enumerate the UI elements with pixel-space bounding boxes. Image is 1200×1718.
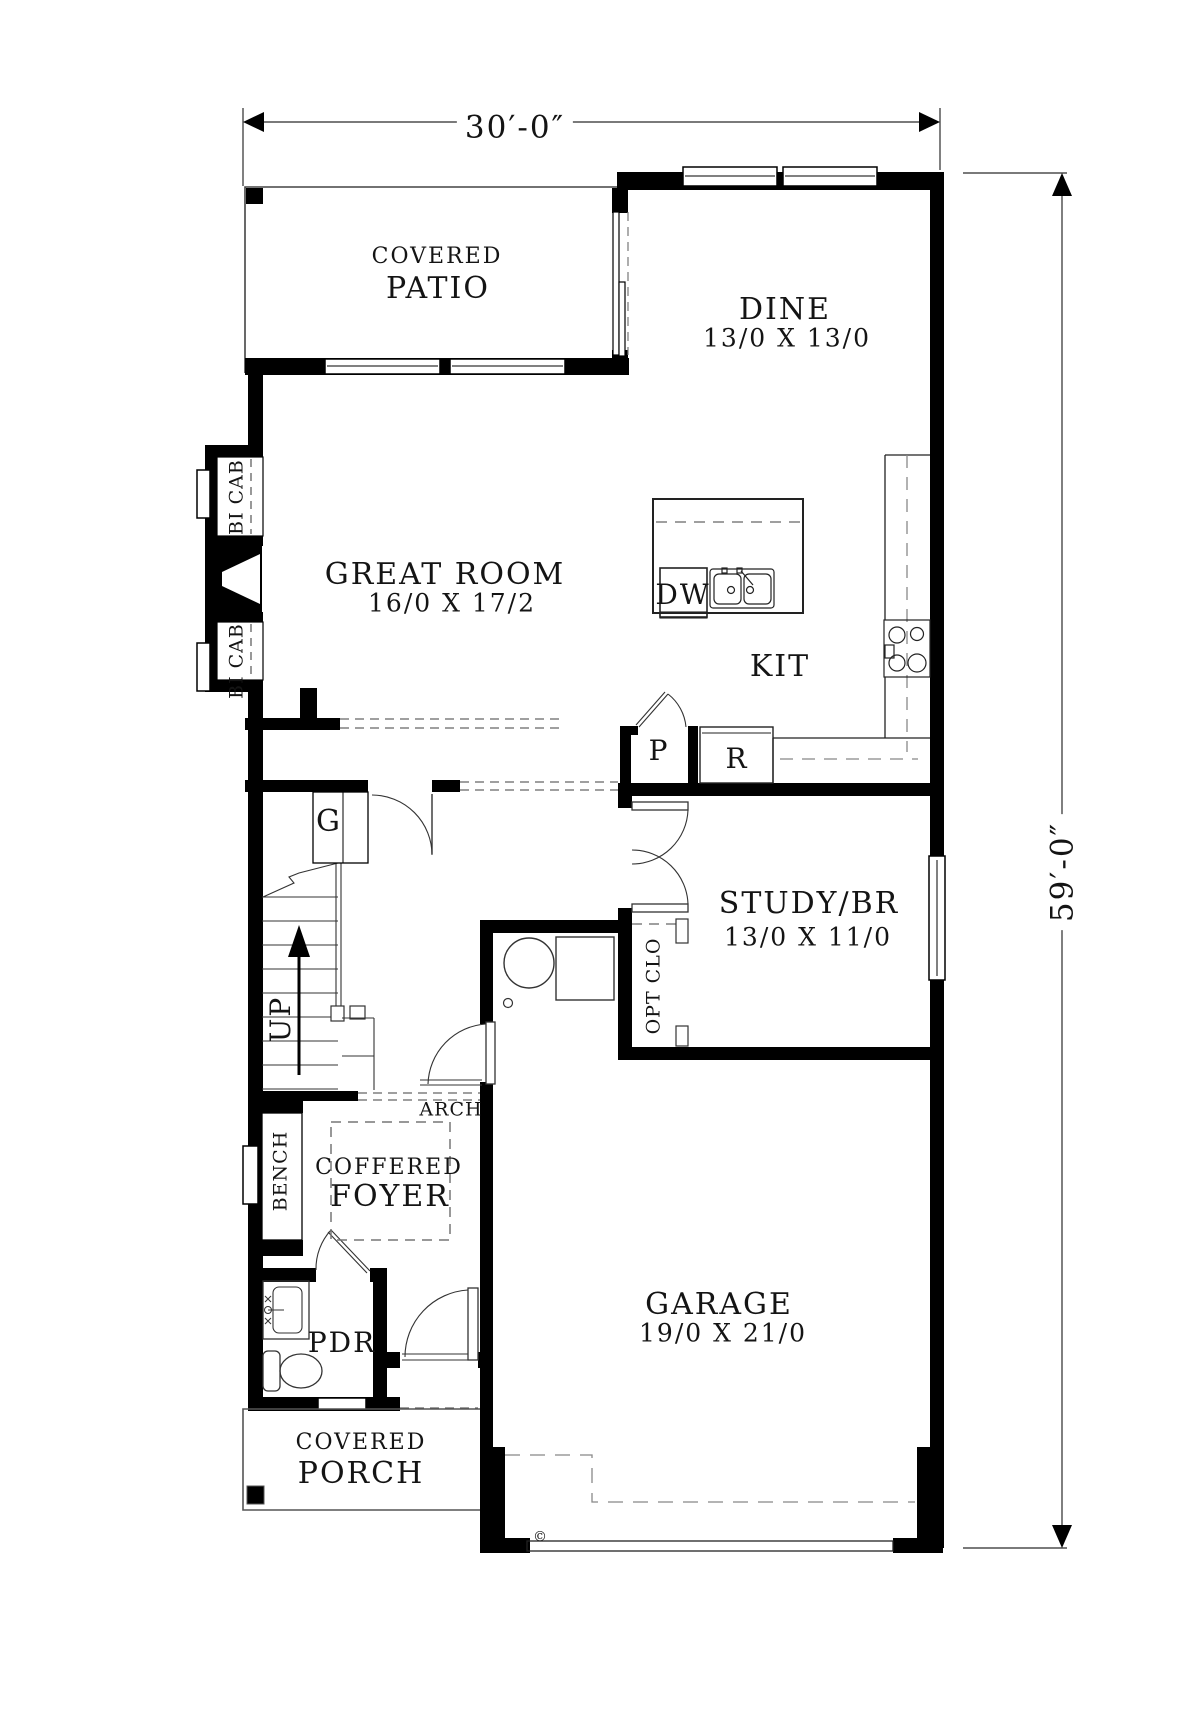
window [197,643,210,691]
stair-rail [331,862,365,1021]
dishwasher-label: DW [655,581,710,609]
great-room-size: 16/0 X 17/2 [368,591,536,616]
porch-post [247,1486,264,1504]
window [450,359,565,374]
refrigerator-label: R [725,745,748,773]
fireplace [205,546,262,612]
wall-right [930,172,944,1448]
patio-label-line2: PATIO [386,274,490,304]
porch-label-line1: COVERED [296,1432,427,1454]
window [243,1146,258,1204]
stairs [262,862,374,1090]
wall-garage-front-right [893,1538,943,1553]
kitchen-sink [710,568,774,608]
powder-door [316,1230,370,1273]
wall-left-lower [248,692,263,1410]
wall-garage-left-b [480,1082,493,1449]
water-heater [504,938,554,988]
garage-size: 19/0 X 21/0 [639,1321,807,1346]
foyer-label-line1: COFFERED [315,1157,463,1179]
garage-door-track [505,1455,915,1502]
wall-kitchen-study [618,783,930,796]
front-door [402,1288,478,1360]
wall-hall [245,780,368,792]
dine-size: 13/0 X 13/0 [703,326,871,351]
wall-garage-top [480,920,620,933]
wall-pantry-right [688,726,698,786]
dimension-height-label: 59′-0″ [1047,814,1080,930]
porch-label-line2: PORCH [298,1459,424,1489]
range-cooktop [884,620,930,677]
kitchen-counter [773,455,930,783]
window [683,167,777,186]
kitchen-label: KIT [750,652,810,682]
vanity-sink [263,1281,309,1339]
study-size: 13/0 X 11/0 [724,925,892,950]
wall-garage-front-left [480,1538,530,1553]
garage-entry-door [420,1022,495,1085]
wall-stair-top [245,718,340,730]
great-room-label: GREAT ROOM [325,560,566,590]
pantry-label: P [649,737,670,765]
g-closet-label: G [316,807,342,837]
powder-label: PDR [308,1329,376,1357]
wall-left-upper [248,358,263,453]
garage-label: GARAGE [645,1290,793,1320]
study-label: STUDY/BR [719,889,899,919]
floor-plan-page: 30′-0″ 59′-0″ COVERED PATIO DINE 13/0 X … [0,0,1200,1718]
bi-cab-label-1: BI CAB [228,459,247,535]
patio-post [246,188,263,204]
wall-study-left [618,908,632,1047]
furnace [556,937,614,1000]
g-closet-door [372,794,432,855]
window [197,470,210,518]
bi-cab-label-2: BI CAB [228,623,247,699]
study-french-doors [632,802,688,912]
wall-study-garage [618,1047,943,1060]
dine-label: DINE [739,295,831,325]
garage-door [527,1541,893,1551]
foyer-label-line2: FOYER [330,1182,450,1212]
window [783,167,877,186]
stairs-up-label: UP [267,996,295,1042]
stair-break-line [263,863,338,897]
wall-garage-left-a [480,920,493,1024]
window [929,856,945,980]
wall-right-garage [917,1447,944,1548]
arch-label: ARCH [419,1101,482,1120]
opt-closet-label: OPT CLO [645,938,664,1035]
wall-top [617,172,943,190]
floor-plan-drawing [0,0,1200,1718]
window [325,359,440,374]
bench-label: BENCH [272,1131,291,1212]
pantry-door [636,692,686,727]
patio-label-line1: COVERED [372,246,503,268]
copyright-mark: © [533,1530,547,1544]
wall-pdr-top [248,1268,316,1282]
dimension-width-label: 30′-0″ [457,112,573,145]
utility-equipment [504,937,615,1008]
sliding-door [613,212,628,356]
wall-foyer-arch [253,1091,358,1101]
floor-drain [504,999,513,1008]
patio-post [612,188,628,213]
